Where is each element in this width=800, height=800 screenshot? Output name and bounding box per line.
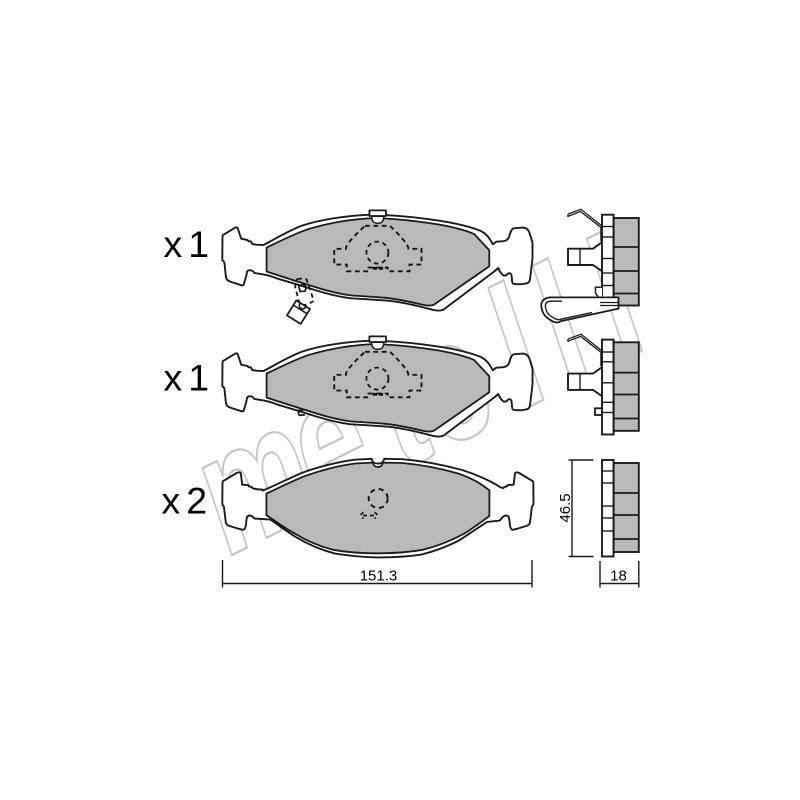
svg-text:18: 18 xyxy=(610,568,627,585)
svg-text:46.5: 46.5 xyxy=(557,493,574,522)
svg-text:x 2: x 2 xyxy=(162,480,206,522)
svg-text:151.3: 151.3 xyxy=(360,568,398,585)
svg-text:x 1: x 1 xyxy=(164,357,209,399)
svg-text:x 1: x 1 xyxy=(164,223,209,265)
